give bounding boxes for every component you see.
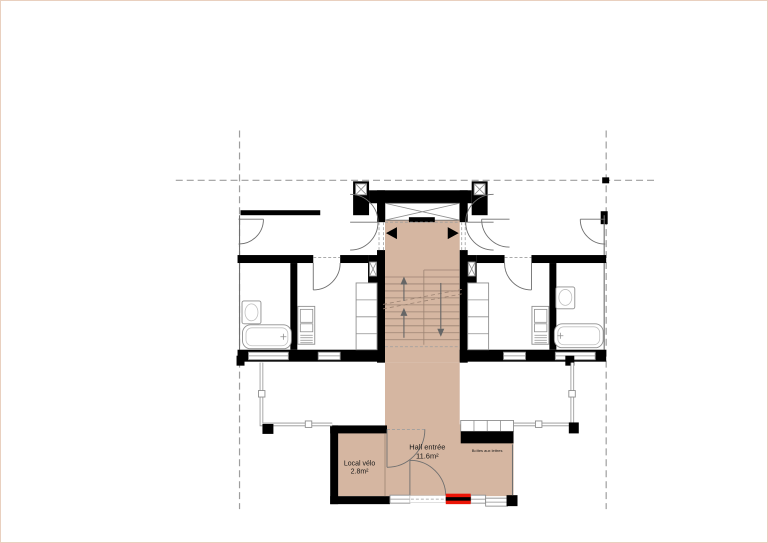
right-balcony bbox=[512, 363, 579, 434]
bike-room-label: Local vélo bbox=[344, 460, 376, 467]
mailboxes bbox=[461, 420, 514, 443]
bike-room-area-label: 2.8m² bbox=[351, 468, 369, 475]
balcony-glazing bbox=[261, 363, 332, 425]
right-apartment bbox=[460, 215, 606, 365]
door-right-room bbox=[505, 263, 532, 290]
wardrobe-right bbox=[468, 283, 489, 350]
hall-label: Hall entrée bbox=[409, 442, 445, 451]
mailbox-wall bbox=[461, 431, 514, 443]
mailboxes-label: Boîtes aux lettres bbox=[472, 448, 503, 453]
left-balcony bbox=[258, 363, 332, 434]
door-right-apartment bbox=[482, 219, 510, 247]
floor-plan-canvas: Hall entrée 11.6m² Local vélo 2.8m² Boît… bbox=[1, 1, 767, 542]
kitchen-sink-left bbox=[298, 306, 315, 344]
door-left-room bbox=[313, 263, 340, 290]
floor-plan-page: Hall entrée 11.6m² Local vélo 2.8m² Boît… bbox=[0, 0, 768, 543]
guide-wall-mark-top bbox=[602, 177, 609, 183]
stair-corridor-floor bbox=[385, 220, 460, 362]
door-left-edge bbox=[239, 219, 264, 244]
entrance-door-red bbox=[446, 494, 471, 504]
elevator-door bbox=[409, 217, 435, 222]
balcony-glazing bbox=[512, 363, 573, 425]
elevator bbox=[385, 203, 460, 222]
canopy-wall bbox=[241, 210, 321, 215]
kitchen-sink-right bbox=[532, 306, 549, 344]
washbasin-left bbox=[242, 301, 261, 324]
bathtub-left bbox=[243, 325, 292, 349]
bathtub-right bbox=[554, 324, 603, 348]
hall-area-label: 11.6m² bbox=[416, 451, 439, 460]
wardrobe-left bbox=[356, 283, 377, 350]
washbasin-right bbox=[556, 287, 575, 309]
